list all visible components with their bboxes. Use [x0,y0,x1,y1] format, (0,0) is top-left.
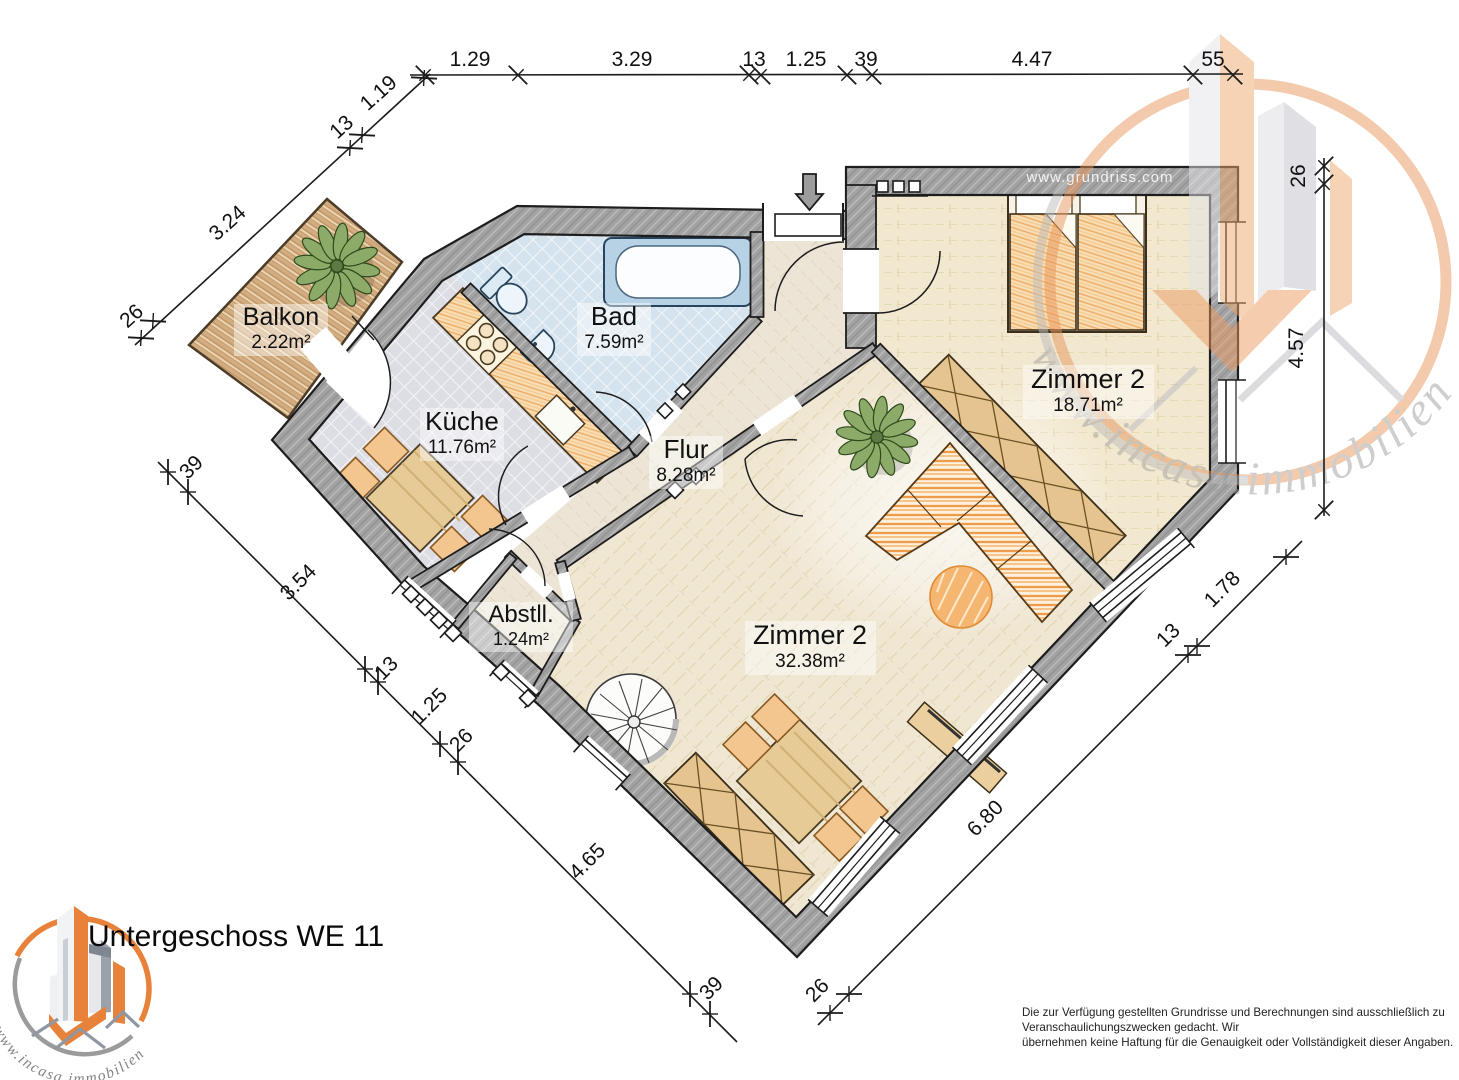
svg-text:3.29: 3.29 [612,48,653,71]
svg-text:8.28m²: 8.28m² [656,465,715,486]
svg-text:1.25: 1.25 [786,48,827,71]
svg-text:4.57: 4.57 [1285,328,1308,369]
svg-text:26: 26 [1287,164,1310,187]
svg-text:Küche: Küche [425,406,499,436]
svg-text:www.grundriss.com: www.grundriss.com [1025,169,1173,186]
svg-text:1.29: 1.29 [450,48,491,71]
svg-text:39: 39 [854,48,877,71]
svg-text:Die zur Verfügung gestellten G: Die zur Verfügung gestellten Grundrisse … [1022,1006,1445,1019]
svg-text:Untergeschoss WE 11: Untergeschoss WE 11 [88,920,384,953]
svg-text:4.47: 4.47 [1012,48,1053,71]
svg-text:Zimmer 2: Zimmer 2 [753,620,867,650]
svg-text:32.38m²: 32.38m² [775,651,845,672]
svg-text:2.22m²: 2.22m² [251,332,310,353]
svg-text:18.71m²: 18.71m² [1053,395,1123,416]
svg-text:7.59m²: 7.59m² [584,332,643,353]
svg-text:11.76m²: 11.76m² [428,437,496,458]
svg-text:Zimmer 2: Zimmer 2 [1031,364,1145,394]
svg-text:Flur: Flur [664,434,709,464]
svg-text:übernehmen keine Haftung für d: übernehmen keine Haftung für die Genauig… [1022,1036,1453,1049]
svg-text:1.24m²: 1.24m² [493,629,549,649]
svg-text:Abstll.: Abstll. [488,601,553,628]
svg-text:Balkon: Balkon [243,303,319,331]
svg-text:55: 55 [1201,48,1224,71]
svg-text:13: 13 [742,48,765,71]
svg-text:Bad: Bad [591,301,637,331]
svg-text:Veranschaulichungszwecken geda: Veranschaulichungszwecken gedacht. Wir [1022,1021,1239,1034]
